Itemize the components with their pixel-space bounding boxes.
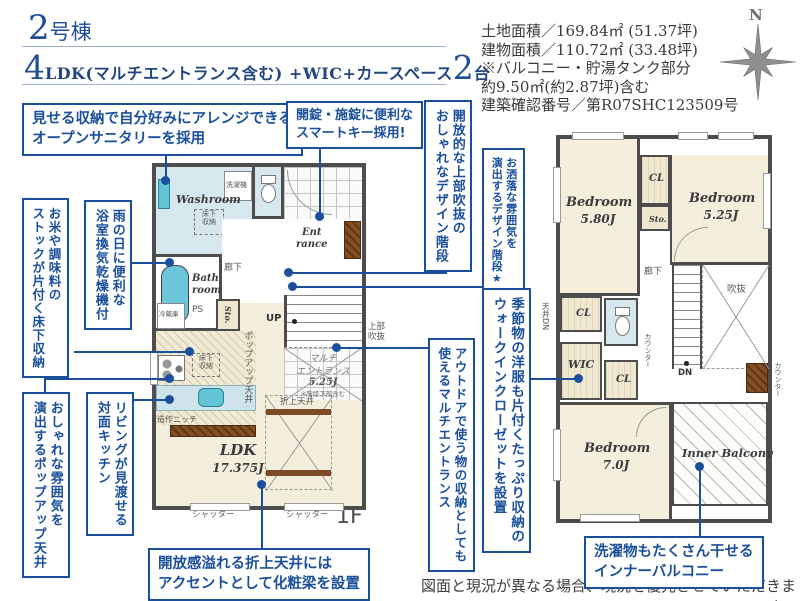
underfloor-storage-kitchen: 床下 収納 <box>192 353 220 377</box>
void-2f: 吹抜 <box>702 265 768 369</box>
leader-dot-coffered <box>257 480 266 489</box>
toilet-bowl-icon <box>261 184 276 203</box>
flyer-canvas: 2号棟 4LDK(マルチエントランス含む) +WIC+カースペース2台 土地面積… <box>0 0 800 601</box>
leader-multi-entrance <box>339 347 430 349</box>
fridge-label: 冷蔵庫 <box>159 311 179 318</box>
niche-counter-wood <box>170 425 256 437</box>
callout-wic-col2: ウォークインクローゼットを設置 <box>489 297 507 544</box>
leader-dot-design-stairs <box>288 282 297 291</box>
callout-open-sanitary: 見せる収納で自分好みにアレンジできる オープンサニタリーを採用 <box>22 103 303 156</box>
floor1-plan: Washroom 洗濯機 床下 収納 Ent rance 廊下 Bath roo… <box>152 163 366 510</box>
room-inner-balcony: Inner Balcony <box>672 402 768 506</box>
building-title: 2号棟 <box>28 8 92 48</box>
void-label: 吹抜 <box>727 285 746 296</box>
callout-coffered-line1: 開放感溢れる折上天井には <box>158 554 360 574</box>
ldk-label-1: LDK <box>206 441 270 461</box>
bedroom-525-door-arc <box>674 227 708 261</box>
callout-multi-entrance-col2: 使えるマルチエントランス <box>435 347 451 563</box>
room-closet-top: CL <box>640 155 670 205</box>
leader-coffered <box>261 487 263 549</box>
leader-dot-open-sanitary <box>161 176 170 185</box>
stairs-2f <box>672 265 702 369</box>
decor-beam-1 <box>266 409 331 415</box>
ps-label: PS <box>192 305 203 315</box>
callout-multi-entrance-col1: アウトドアで使う物の収納としても <box>451 347 467 563</box>
callout-popup-ceiling-col2: 演出するポップアップ天井 <box>29 401 46 569</box>
room-storage-1f: Sto. <box>216 299 240 331</box>
toilet-tank-icon-2f <box>615 307 630 316</box>
callout-open-sanitary-line2: オープンサニタリーを採用 <box>32 129 293 149</box>
leader-dot-smart-key <box>315 212 324 221</box>
washer-label: 洗濯機 <box>226 181 247 189</box>
bedroom-525-label-2: 5.25J <box>689 208 753 224</box>
callout-smart-key-line2: スマートキー採用! <box>296 125 413 143</box>
bath-label-2: room <box>192 285 221 297</box>
leader-smart-key <box>319 140 321 218</box>
bath-label-1: Bath <box>192 273 221 285</box>
window <box>580 514 640 522</box>
bedroom-525-label: Bedroom 5.25J <box>689 191 753 223</box>
storage-2f-label: Sto. <box>649 214 666 224</box>
header-rule-bottom <box>22 84 446 85</box>
callout-coffered: 開放感溢れる折上天井には アクセントとして化粧梁を設置 <box>148 548 370 601</box>
leader-dot-floor-storage <box>185 347 194 356</box>
underfloor-label-2: 収納 <box>195 218 223 226</box>
window <box>553 429 561 481</box>
multi-label-2: エントランス <box>284 364 362 377</box>
closet-top-label: CL <box>649 173 664 184</box>
callout-bath-dryer-col1: 雨の日に便利な <box>108 209 125 321</box>
underfloor-k-label-1: 床下 <box>193 354 219 362</box>
room-closet-bottom: CL <box>604 360 638 400</box>
bedroom-580-label-2: 5.80J <box>566 212 630 228</box>
callout-open-sanitary-line1: 見せる収納で自分好みにアレンジできる <box>32 109 293 129</box>
coffered-ceiling-zone: 折上天井 <box>265 395 332 490</box>
leader-dot-bath-dryer <box>165 258 174 267</box>
up-label: UP <box>266 313 281 325</box>
entrance-label: Ent rance <box>296 227 327 251</box>
callout-inner-balcony-line2: インナーバルコニー <box>594 562 754 582</box>
room-bedroom-70: Bedroom 7.0J <box>560 402 672 519</box>
closet-bottom-label: CL <box>616 374 631 385</box>
callout-wic-col1: 季節物の洋服も片付くたっぷり収納の <box>507 297 525 544</box>
leader-floor-storage <box>74 351 192 353</box>
leader-popup-h <box>44 378 170 380</box>
car-count: 2 <box>453 48 474 87</box>
window <box>553 167 561 223</box>
bedroom-580-label: Bedroom 5.80J <box>566 195 630 227</box>
popup-ceiling-label: ポップアップ天井 <box>242 331 252 403</box>
leader-dot-popup <box>165 374 174 383</box>
entrance-label-2: rance <box>296 239 327 251</box>
hall-label-1f: 廊下 <box>224 263 242 273</box>
leader-bath-dryer <box>127 262 170 264</box>
inner-balcony-label: Inner Balcony <box>682 446 773 460</box>
bedroom-70-label-1: Bedroom <box>584 441 648 458</box>
leader-dot-multi-entrance <box>332 343 341 352</box>
room-multi-entrance: マルチ エントランス 5.25J ※階段下部含む <box>284 347 362 400</box>
leader-inner-balcony <box>699 470 701 537</box>
decor-beam-2 <box>266 470 331 476</box>
callout-multi-entrance: アウトドアで使う物の収納としても 使えるマルチエントランス <box>428 338 475 572</box>
leader-dot-void-stairs <box>284 268 293 277</box>
callout-bath-dryer: 雨の日に便利な 浴室換気乾燥機付 <box>84 200 132 330</box>
leader-dot-inner-balcony <box>695 462 704 471</box>
room-closet-mid: CL <box>560 296 602 332</box>
coffered-label: 折上天井 <box>280 398 314 408</box>
washroom-label: Washroom <box>176 193 241 206</box>
bedroom-70-label: Bedroom 7.0J <box>584 441 648 473</box>
bedroom-525-label-1: Bedroom <box>689 191 753 208</box>
counter-label-inner: カウンター <box>644 333 652 368</box>
leader-face-kitchen <box>128 399 170 401</box>
callout-coffered-line2: アクセントとして化粧梁を設置 <box>158 574 360 594</box>
building-suffix: 号棟 <box>50 16 92 46</box>
room-bedroom-580: Bedroom 5.80J <box>560 139 640 296</box>
bedroom-580-label-1: Bedroom <box>566 195 630 212</box>
window <box>572 132 624 140</box>
multi-entrance-labels: マルチ エントランス 5.25J ※階段下部含む <box>284 348 362 398</box>
callout-design-stairs-col1: お洒落な雰囲気を <box>503 157 517 286</box>
callout-floor-storage: お米や調味料の ストックが片付く床下収納 <box>22 198 69 378</box>
bath-label: Bath room <box>192 273 221 297</box>
callout-bath-dryer-col2: 浴室換気乾燥機付 <box>91 209 108 321</box>
room-storage-2f: Sto. <box>640 205 670 231</box>
kitchen-sink-icon <box>198 388 224 407</box>
callout-face-kitchen-col1: リビングが見渡せる <box>110 401 127 527</box>
hall-label-2f: 廊下 <box>644 267 662 277</box>
balcony-note-1: ※バルコニー・貯湯タンク部分 <box>481 59 738 78</box>
building-area: 建物面積／110.72㎡ (33.48坪) <box>481 41 738 60</box>
niche-label: 造作ニッチ <box>157 415 197 424</box>
callout-face-kitchen: リビングが見渡せる 対面キッチン <box>86 392 134 536</box>
leader-dot-face-kitchen <box>165 395 174 404</box>
callout-popup-ceiling: おしゃれな雰囲気を 演出するポップアップ天井 <box>22 392 70 578</box>
leader-dot-wic <box>574 374 583 383</box>
plan-text: LDK(マルチエントランス含む) +WIC+カースペース <box>45 60 453 84</box>
entrance-label-1: Ent <box>296 227 327 239</box>
window <box>763 173 771 229</box>
room-hall-1f <box>222 219 284 303</box>
upper-void-label: 上部 吹抜 <box>368 323 385 343</box>
site-info: 土地面積／169.84㎡ (51.37坪) 建物面積／110.72㎡ (33.4… <box>481 22 738 115</box>
building-number: 2 <box>28 8 50 48</box>
ldk-label: LDK 17.375J <box>206 441 270 476</box>
leader-design-stairs <box>294 286 486 288</box>
callout-void-stairs-col1: 開放的な上部吹抜の <box>448 109 465 263</box>
callout-void-stairs-col2: おしゃれなデザイン階段 <box>431 109 448 263</box>
callout-face-kitchen-col2: 対面キッチン <box>93 401 110 527</box>
stair-start-dot <box>292 319 297 324</box>
shutter-label-right: シャッター <box>286 511 329 521</box>
window <box>718 132 754 140</box>
storage-1f-label: Sto. <box>223 306 233 323</box>
callout-popup-ceiling-col1: おしゃれな雰囲気を <box>46 401 63 569</box>
shutter-label-left: シャッター <box>192 511 235 521</box>
void-x-lines <box>703 265 769 369</box>
ldk-label-2: 17.375J <box>206 461 270 477</box>
callout-void-stairs: 開放的な上部吹抜の おしゃれなデザイン階段 <box>424 100 472 272</box>
leader-wic <box>528 378 580 380</box>
callout-floor-storage-col1: お米や調味料の <box>45 207 61 369</box>
closet-mid-label: CL <box>576 308 591 319</box>
underfloor-k-label-2: 収納 <box>193 362 219 370</box>
toilet-bowl-icon-2f <box>615 316 630 336</box>
callout-floor-storage-col2: ストックが片付く床下収納 <box>29 207 45 369</box>
header-rule-top <box>22 46 446 47</box>
room-wic: WIC <box>560 342 602 400</box>
underfloor-storage-washroom: 床下 収納 <box>194 209 224 235</box>
callout-design-stairs-col2: 演出するデザイン階段★ <box>489 157 503 286</box>
confirmation-number: 建築確認番号／第R07SHC123509号 <box>481 96 738 115</box>
leader-void-stairs-h <box>290 272 447 274</box>
bedroom-70-door-arc <box>636 407 666 437</box>
wic-label: WIC <box>568 358 594 371</box>
toilet-tank-icon <box>261 175 276 184</box>
callout-smart-key: 開錠・施錠に便利な スマートキー採用! <box>286 101 423 149</box>
ceiling-dn-label: 天井DN <box>541 302 550 330</box>
plan-summary: 4LDK(マルチエントランス含む) +WIC+カースペース2台 <box>24 48 490 87</box>
stair-dn-dot <box>684 361 689 366</box>
room-bedroom-525: Bedroom 5.25J <box>670 155 768 265</box>
shoe-cabinet <box>344 221 361 259</box>
floor2-plan: Bedroom 5.80J CL Sto. Bedroom 5.25J 廊下 D… <box>556 135 772 523</box>
land-area: 土地面積／169.84㎡ (51.37坪) <box>481 22 738 41</box>
underfloor-label-1: 床下 <box>195 210 223 218</box>
leader-open-sanitary <box>165 152 167 178</box>
multi-label-3: 5.25J <box>284 377 362 388</box>
upper-void-label-2: 吹抜 <box>368 333 385 343</box>
bedroom-70-label-2: 7.0J <box>584 458 648 474</box>
balcony-note-2: 約9.50㎡(約2.87坪)含む <box>481 78 738 97</box>
callout-wic: 季節物の洋服も片付くたっぷり収納の ウォークインクローゼットを設置 <box>482 288 531 553</box>
callout-inner-balcony: 洗濯物もたくさん干せる インナーバルコニー <box>584 536 764 589</box>
callout-smart-key-line1: 開錠・施錠に便利な <box>296 107 413 125</box>
multi-label-1: マルチ <box>284 351 362 364</box>
compass-icon <box>716 20 800 104</box>
dn-label: DN <box>678 369 692 379</box>
ldk-count: 4 <box>24 48 45 87</box>
room-toilet-1f <box>255 167 284 219</box>
room-toilet-2f <box>604 298 638 346</box>
callout-inner-balcony-line1: 洗濯物もたくさん干せる <box>594 542 754 562</box>
window <box>678 132 708 140</box>
counter-label-outer: カウンター <box>774 362 782 397</box>
callout-design-stairs: お洒落な雰囲気を 演出するデザイン階段★ <box>482 148 525 295</box>
